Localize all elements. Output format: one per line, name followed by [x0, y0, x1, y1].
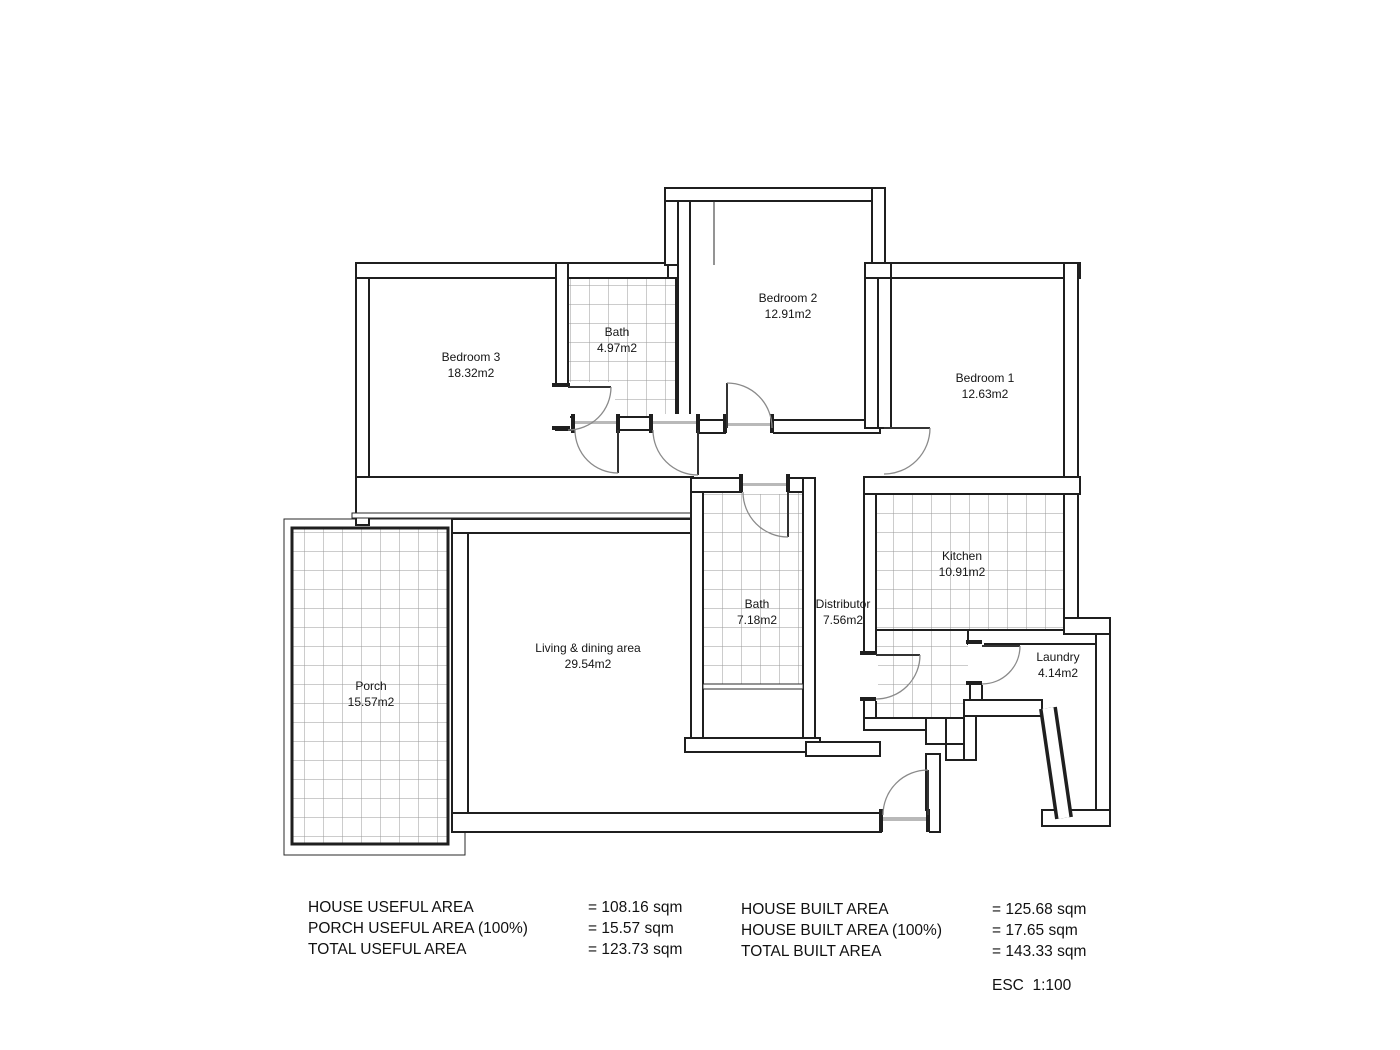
wall-entry-horizontal: [964, 700, 1042, 716]
label-laundry-area: 4.14m2: [1038, 666, 1078, 680]
wall-bed1-bottom-kitchen-top: [864, 477, 1080, 494]
wall-living-top: [452, 519, 695, 533]
label-bedroom2-area: 12.91m2: [765, 307, 812, 321]
wall-living-bottom: [452, 813, 940, 832]
opening-bed2-door: [726, 418, 773, 435]
label-bedroom1-name: Bedroom 1: [956, 371, 1015, 385]
label-distributor-area: 7.56m2: [823, 613, 863, 627]
wall-exterior-jog: [1064, 618, 1110, 634]
wall-bed2-left: [678, 201, 690, 433]
floor-plan-page: Bedroom 3 18.32m2 Bath 4.97m2 Bedroom 2 …: [0, 0, 1400, 1050]
summary-built-row1-label: HOUSE BUILT AREA: [741, 901, 889, 918]
wall-bed2-right: [865, 265, 878, 428]
summary-useful-row1-value: = 108.16 sqm: [588, 899, 682, 916]
wall-kitchen-strip-bottom: [864, 718, 932, 730]
wall-laundry-right: [1096, 630, 1110, 826]
wall-bath-large-bottom: [685, 738, 820, 752]
scale-label: ESC 1:100: [992, 977, 1072, 994]
summary-built-row2-value: = 17.65 sqm: [992, 922, 1078, 939]
wall-bed2-bottom: [690, 420, 880, 433]
wall-exterior-top-right: [885, 263, 1080, 278]
opening-bed3-door: [554, 386, 570, 428]
label-bedroom1-area: 12.63m2: [962, 387, 1009, 401]
wall-overhang-line: [352, 513, 695, 518]
label-distributor-name: Distributor: [816, 597, 871, 611]
area-summary: HOUSE USEFUL AREA = 108.16 sqm PORCH USE…: [308, 899, 1086, 994]
label-kitchen-area: 10.91m2: [939, 565, 986, 579]
door-entry: [883, 770, 928, 815]
label-living-name: Living & dining area: [535, 641, 641, 655]
kitchen-floor-strip: [876, 630, 970, 718]
wall-bed1-top-cap: [865, 263, 891, 278]
wall-laundry-bottom: [1042, 810, 1110, 826]
wall-distributor-bottom: [806, 742, 880, 756]
floor-plan-drawing: Bedroom 3 18.32m2 Bath 4.97m2 Bedroom 2 …: [0, 0, 1400, 1050]
summary-useful-row2-value: = 15.57 sqm: [588, 920, 674, 937]
wall-protrusion-top: [665, 188, 885, 201]
label-bath-small-name: Bath: [605, 325, 630, 339]
door-hallway: [653, 430, 698, 475]
label-bath-large-name: Bath: [745, 597, 770, 611]
opening-laundry-door: [968, 643, 984, 685]
wall-bath-large-right: [803, 478, 815, 752]
label-porch-area: 15.57m2: [348, 695, 395, 709]
label-bath-small-area: 4.97m2: [597, 341, 637, 355]
label-bedroom3-name: Bedroom 3: [442, 350, 501, 364]
wall-bath-large-divider: [703, 684, 803, 689]
label-bedroom3-area: 18.32m2: [448, 366, 495, 380]
wall-bed1-left: [878, 265, 891, 428]
label-kitchen-name: Kitchen: [942, 549, 982, 563]
wall-protrusion-right: [872, 188, 885, 265]
wall-entry-step1: [926, 718, 946, 744]
summary-built-row1-value: = 125.68 sqm: [992, 901, 1086, 918]
door-laundry: [982, 646, 1020, 684]
summary-built-row3-label: TOTAL BUILT AREA: [741, 943, 882, 960]
label-porch-name: Porch: [355, 679, 386, 693]
label-laundry-name: Laundry: [1036, 650, 1079, 664]
wall-bed3-bottom-thick: [356, 477, 693, 514]
wall-exterior-right: [1064, 263, 1078, 623]
summary-useful-row3-label: TOTAL USEFUL AREA: [308, 941, 467, 958]
door-bath-small: [575, 430, 618, 473]
label-living-area: 29.54m2: [565, 657, 612, 671]
summary-useful-row3-value: = 123.73 sqm: [588, 941, 682, 958]
door-bed1: [884, 428, 930, 474]
label-bedroom2-name: Bedroom 2: [759, 291, 818, 305]
opening-hall-door: [652, 414, 699, 435]
summary-built-row3-value: = 143.33 sqm: [992, 943, 1086, 960]
label-bath-large-area: 7.18m2: [737, 613, 777, 627]
summary-useful-row2-label: PORCH USEFUL AREA (100%): [308, 920, 528, 937]
summary-useful-row1-label: HOUSE USEFUL AREA: [308, 899, 474, 916]
summary-built-row2-label: HOUSE BUILT AREA (100%): [741, 922, 942, 939]
wall-bath-large-left: [691, 478, 703, 752]
wall-exterior-top-left: [356, 263, 668, 278]
wall-living-left: [452, 519, 468, 832]
opening-kitchen-door: [862, 654, 878, 701]
opening-entry-door: [882, 811, 929, 834]
